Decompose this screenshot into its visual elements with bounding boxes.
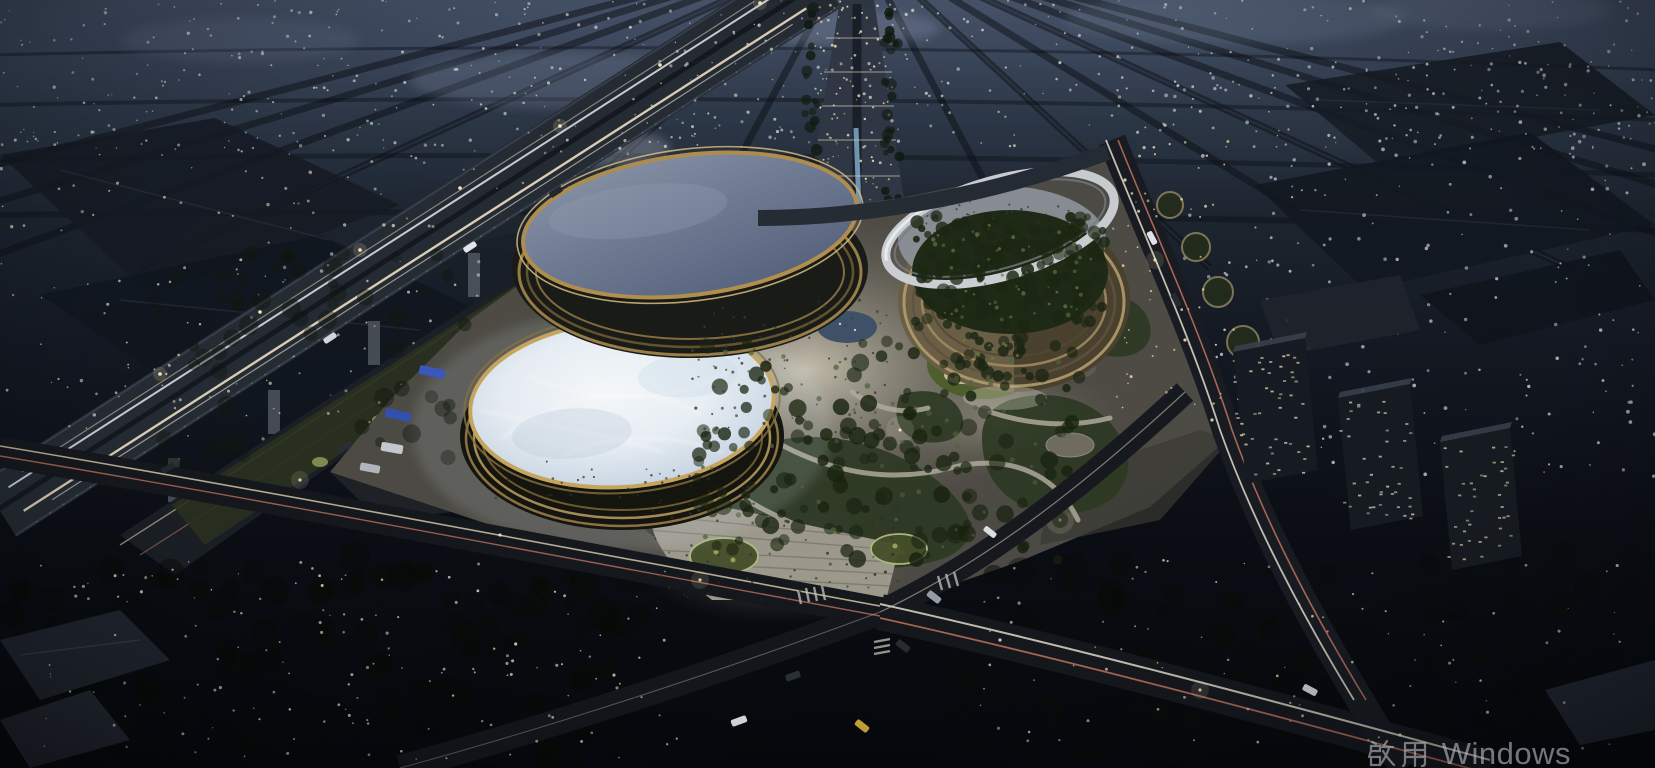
screenshot-root: Windows bbox=[0, 0, 1655, 768]
rendering-canvas bbox=[0, 0, 1655, 768]
vignette-overlay bbox=[0, 0, 1655, 768]
